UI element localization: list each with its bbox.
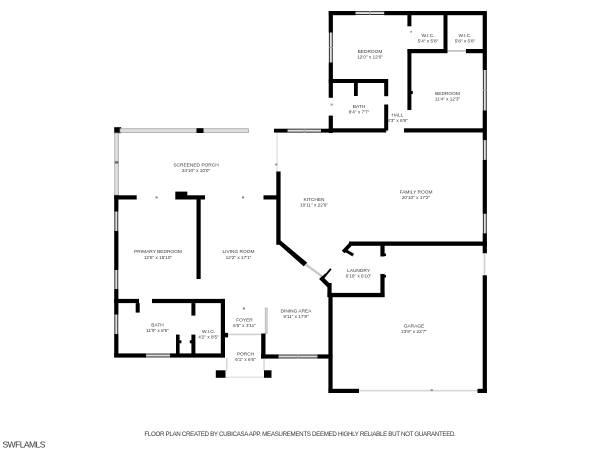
svg-text:6'5" x 3'11": 6'5" x 3'11"	[233, 323, 256, 328]
svg-text:24'10" x 10'0": 24'10" x 10'0"	[182, 168, 211, 173]
svg-text:12'0" x 12'0": 12'0" x 12'0"	[357, 55, 383, 60]
svg-text:6'10" x 6'10": 6'10" x 6'10"	[346, 273, 372, 278]
svg-text:23'8" x 22'7": 23'8" x 22'7"	[401, 329, 427, 334]
svg-text:9'11" x 17'8": 9'11" x 17'8"	[283, 314, 309, 319]
svg-text:5'8" x 5'8": 5'8" x 5'8"	[455, 38, 476, 43]
svg-text:SWFLAMLS: SWFLAMLS	[3, 440, 46, 450]
svg-text:5'4" x 5'8": 5'4" x 5'8"	[418, 38, 439, 43]
svg-text:4'2" x 8'5": 4'2" x 8'5"	[198, 334, 219, 339]
svg-text:PRIMARY BEDROOM: PRIMARY BEDROOM	[134, 249, 182, 255]
svg-text:FLOOR PLAN CREATED BY CUBICASA: FLOOR PLAN CREATED BY CUBICASA APP. MEAS…	[144, 431, 456, 438]
svg-text:12'6" x 15'10": 12'6" x 15'10"	[144, 255, 173, 260]
svg-text:20'10" x 17'2": 20'10" x 17'2"	[402, 195, 431, 200]
svg-text:3'3" x 6'9": 3'3" x 6'9"	[387, 118, 408, 123]
svg-text:10'11" x 22'6": 10'11" x 22'6"	[300, 202, 328, 207]
svg-text:11'9" x 8'5": 11'9" x 8'5"	[146, 328, 169, 333]
svg-text:11'4" x 12'3": 11'4" x 12'3"	[435, 96, 461, 101]
svg-text:6'1" x 6'6": 6'1" x 6'6"	[235, 357, 256, 362]
svg-text:8'4" x 7'7": 8'4" x 7'7"	[349, 109, 370, 114]
svg-text:LIVING ROOM: LIVING ROOM	[223, 249, 255, 255]
svg-text:12'2" x 17'1": 12'2" x 17'1"	[226, 255, 252, 260]
